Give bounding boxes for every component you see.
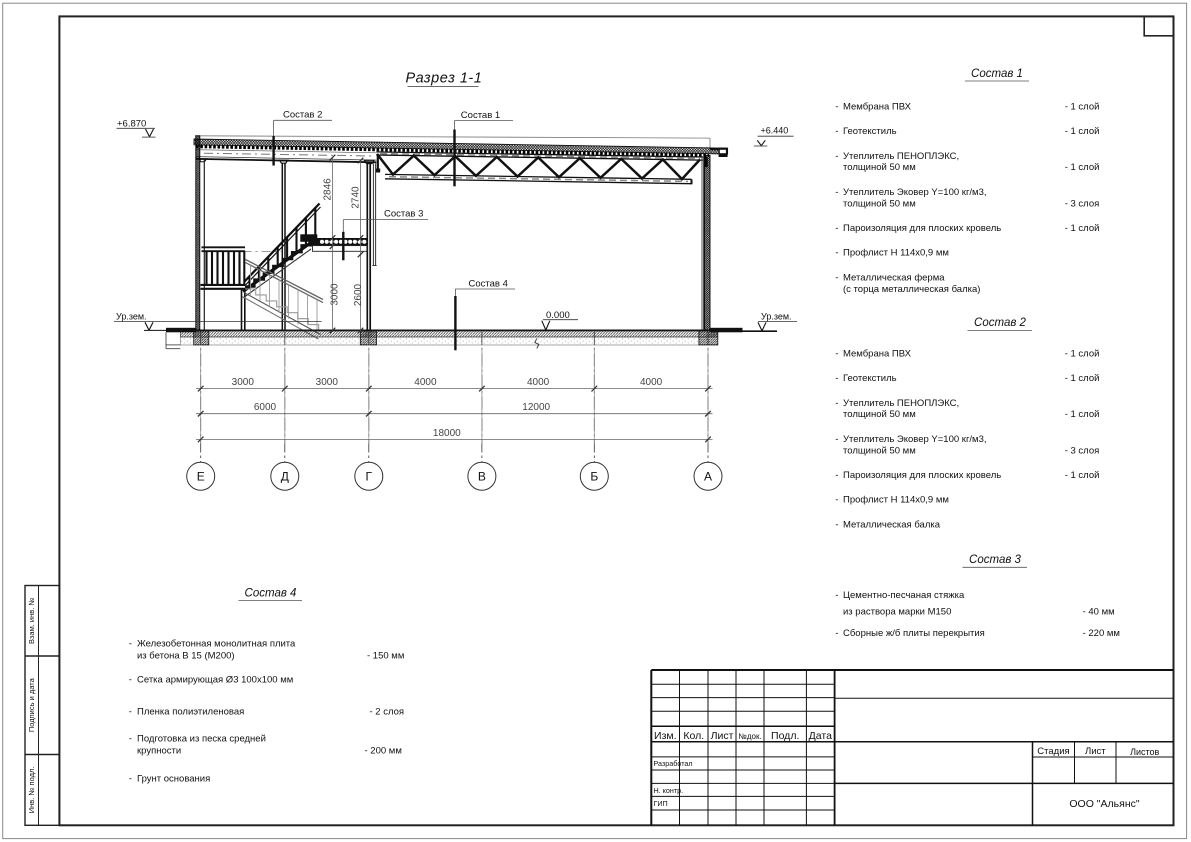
svg-text:- 1 слой: - 1 слой [1065,373,1100,384]
svg-text:2846: 2846 [323,178,334,201]
svg-text:Утеплитель Эковер Y=100 кг/м3,: Утеплитель Эковер Y=100 кг/м3, [843,187,987,198]
svg-text:№док.: №док. [738,732,761,741]
svg-text:-: - [835,151,838,162]
svg-text:Состав 2: Состав 2 [283,110,322,121]
svg-text:Кол.: Кол. [683,730,704,742]
svg-text:-: - [835,248,838,259]
svg-text:- 3 слоя: - 3 слоя [1065,198,1100,209]
svg-text:4000: 4000 [527,377,550,388]
svg-text:Е: Е [197,470,205,484]
svg-text:- 1 слой: - 1 слой [1065,348,1100,359]
svg-text:-: - [835,590,838,601]
svg-text:2600: 2600 [353,283,364,306]
svg-text:4000: 4000 [640,377,663,388]
svg-text:- 150 мм: - 150 мм [367,651,404,662]
svg-text:- 3 слоя: - 3 слоя [1065,445,1100,456]
svg-text:- 1 слой: - 1 слой [1065,409,1100,420]
svg-text:6000: 6000 [254,402,277,413]
svg-text:Профлист Н 114х0,9 мм: Профлист Н 114х0,9 мм [843,248,949,259]
svg-text:Пароизоляция для плоских крове: Пароизоляция для плоских кровель [843,470,1001,481]
svg-text:Состав 2: Состав 2 [974,317,1026,329]
svg-text:Разработал: Разработал [654,759,693,768]
svg-text:Металлическая балка: Металлическая балка [843,519,941,530]
svg-text:Пароизоляция для плоских крове: Пароизоляция для плоских кровель [843,223,1001,234]
svg-text:18000: 18000 [433,428,461,439]
svg-text:Состав 1: Состав 1 [461,110,500,121]
svg-text:Лист: Лист [711,730,734,742]
svg-text:-: - [835,373,838,384]
svg-text:- 40 мм: - 40 мм [1083,606,1115,617]
svg-text:2740: 2740 [351,186,362,209]
svg-text:-: - [835,434,838,445]
svg-text:-: - [835,495,838,506]
svg-text:4000: 4000 [414,377,437,388]
svg-text:Состав 4: Состав 4 [469,278,508,289]
svg-text:Пленка полиэтиленовая: Пленка полиэтиленовая [137,707,244,718]
svg-text:-: - [835,126,838,137]
svg-text:-: - [835,519,838,530]
svg-text:Ур.зем.: Ур.зем. [116,312,147,322]
svg-text:Стадия: Стадия [1037,746,1069,757]
svg-text:+6.440: +6.440 [761,126,789,136]
svg-text:-: - [835,187,838,198]
svg-text:Изм.: Изм. [654,730,677,742]
svg-text:-: - [835,470,838,481]
svg-text:Состав 1: Состав 1 [971,68,1023,80]
svg-text:- 1 слой: - 1 слой [1065,470,1100,481]
svg-text:Мембрана ПВХ: Мембрана ПВХ [843,348,912,359]
svg-text:ГИП: ГИП [654,799,668,808]
svg-text:толщиной 50 мм: толщиной 50 мм [843,409,916,420]
svg-text:- 200 мм: - 200 мм [365,745,402,756]
svg-text:Утеплитель ПЕНОПЛЭКС,: Утеплитель ПЕНОПЛЭКС, [843,151,959,162]
svg-text:толщиной 50 мм: толщиной 50 мм [843,198,916,209]
svg-text:Инв. № подл.: Инв. № подл. [27,767,36,814]
svg-text:А: А [704,470,712,484]
svg-text:-: - [835,398,838,409]
svg-text:Дата: Дата [809,730,832,742]
svg-text:Состав 4: Состав 4 [245,587,297,599]
svg-text:Профлист Н 114х0,9 мм: Профлист Н 114х0,9 мм [843,495,949,506]
svg-text:-: - [129,774,132,785]
svg-text:Г: Г [366,470,373,484]
svg-text:Ур.зем.: Ур.зем. [761,312,792,322]
svg-text:из бетона В 15 (М200): из бетона В 15 (М200) [137,651,235,662]
svg-text:Утеплитель Эковер Y=100 кг/м3,: Утеплитель Эковер Y=100 кг/м3, [843,434,987,445]
svg-text:(с торца металлическая балка): (с торца металлическая балка) [843,284,980,295]
svg-text:Взам. инв. №: Взам. инв. № [27,598,36,644]
svg-text:-: - [129,707,132,718]
svg-text:Сборные ж/б плиты перекрытия: Сборные ж/б плиты перекрытия [843,628,985,639]
svg-text:+6.870: +6.870 [117,119,146,130]
svg-text:-: - [835,628,838,639]
svg-text:12000: 12000 [522,402,550,413]
svg-text:-: - [835,101,838,112]
svg-text:Лист: Лист [1085,746,1106,757]
svg-text:Цементно-песчаная стяжка: Цементно-песчаная стяжка [843,590,965,601]
svg-text:Листов: Листов [1130,747,1159,757]
svg-text:Н. контр.: Н. контр. [654,786,684,795]
svg-text:-: - [129,733,132,744]
svg-text:- 1 слой: - 1 слой [1065,126,1100,137]
svg-text:Подготовка из песка средней: Подготовка из песка средней [137,733,266,744]
svg-text:- 1 слой: - 1 слой [1065,101,1100,112]
svg-text:Состав 3: Состав 3 [969,554,1021,566]
svg-text:В: В [478,470,486,484]
svg-text:Подпись и дата: Подпись и дата [27,677,36,732]
svg-text:- 1 слой: - 1 слой [1065,162,1100,173]
svg-text:3000: 3000 [330,283,341,306]
svg-text:-: - [129,674,132,685]
svg-text:Б: Б [590,470,598,484]
svg-text:Геотекстиль: Геотекстиль [843,126,897,137]
svg-text:-: - [129,639,132,650]
svg-text:Состав 3: Состав 3 [384,209,423,220]
svg-text:-: - [835,272,838,283]
svg-text:толщиной 50 мм: толщиной 50 мм [843,162,916,173]
svg-text:крупности: крупности [137,745,181,756]
svg-text:Мембрана ПВХ: Мембрана ПВХ [843,101,912,112]
svg-text:3000: 3000 [232,377,255,388]
svg-text:Сетка армирующая Ø3 100х100 мм: Сетка армирующая Ø3 100х100 мм [137,674,293,685]
svg-text:Геотекстиль: Геотекстиль [843,373,897,384]
svg-text:Разрез 1-1: Разрез 1-1 [405,71,482,87]
svg-text:- 220 мм: - 220 мм [1083,628,1120,639]
svg-text:- 2 слоя: - 2 слоя [370,707,405,718]
svg-text:Подл.: Подл. [771,730,799,742]
svg-text:Железобетонная монолитная пли: Железобетонная монолитная плита [137,639,296,650]
svg-text:толщиной 50 мм: толщиной 50 мм [843,445,916,456]
svg-text:-: - [835,348,838,359]
svg-text:-: - [835,223,838,234]
svg-text:Металлическая ферма: Металлическая ферма [843,272,945,283]
svg-text:ООО "Альянс": ООО "Альянс" [1069,798,1139,810]
svg-text:Грунт основания: Грунт основания [137,774,210,785]
svg-text:Утеплитель ПЕНОПЛЭКС,: Утеплитель ПЕНОПЛЭКС, [843,398,959,409]
svg-text:- 1 слой: - 1 слой [1065,223,1100,234]
svg-text:Д: Д [281,470,289,484]
svg-text:из раствора марки М150: из раствора марки М150 [843,606,951,617]
svg-text:3000: 3000 [316,377,339,388]
